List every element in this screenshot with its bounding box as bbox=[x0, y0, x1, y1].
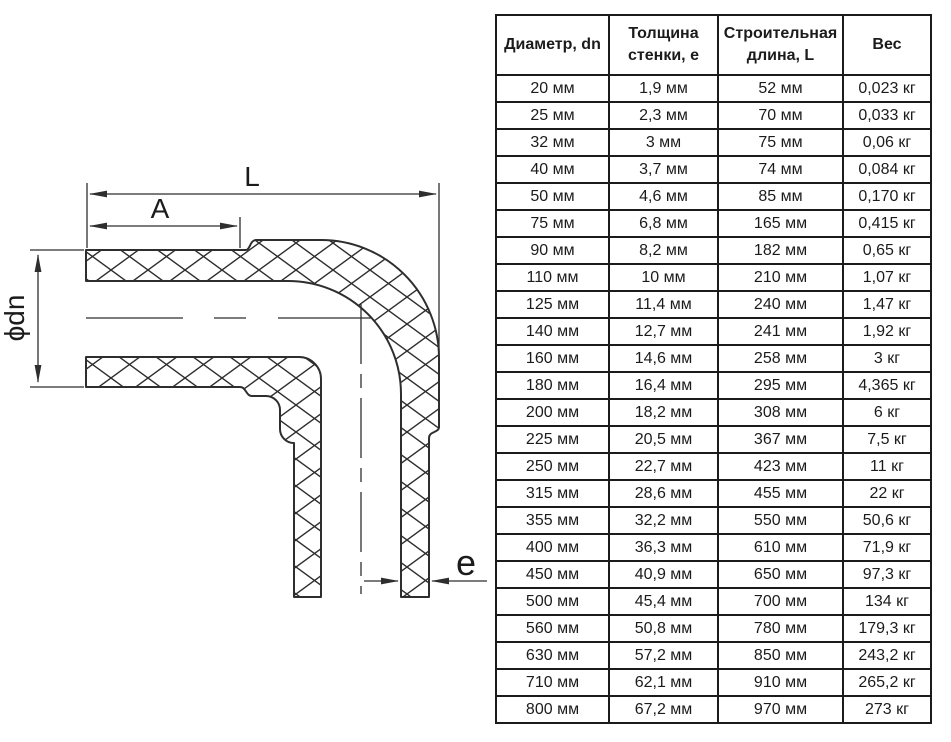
table-cell: 273 кг bbox=[843, 696, 931, 723]
table-row: 75 мм6,8 мм165 мм0,415 кг bbox=[496, 210, 931, 237]
table-body: 20 мм1,9 мм52 мм0,023 кг25 мм2,3 мм70 мм… bbox=[496, 75, 931, 723]
col-header-wall-thickness: Толщина стенки, е bbox=[609, 15, 718, 75]
table-cell: 7,5 кг bbox=[843, 426, 931, 453]
table-cell: 85 мм bbox=[718, 183, 843, 210]
table-cell: 0,084 кг bbox=[843, 156, 931, 183]
table-cell: 12,7 мм bbox=[609, 318, 718, 345]
table-cell: 3 кг bbox=[843, 345, 931, 372]
dimension-socket-depth: A bbox=[90, 193, 240, 248]
table-cell: 1,92 кг bbox=[843, 318, 931, 345]
table-row: 20 мм1,9 мм52 мм0,023 кг bbox=[496, 75, 931, 102]
label-diameter: ϕdn bbox=[0, 295, 30, 342]
table-cell: 71,9 кг bbox=[843, 534, 931, 561]
table-row: 225 мм20,5 мм367 мм7,5 кг bbox=[496, 426, 931, 453]
table-cell: 700 мм bbox=[718, 588, 843, 615]
table-cell: 16,4 мм bbox=[609, 372, 718, 399]
table-cell: 423 мм bbox=[718, 453, 843, 480]
table-cell: 1,9 мм bbox=[609, 75, 718, 102]
table-row: 315 мм28,6 мм455 мм22 кг bbox=[496, 480, 931, 507]
table-cell: 28,6 мм bbox=[609, 480, 718, 507]
dimension-diameter: ϕdn bbox=[0, 250, 84, 387]
table-cell: 182 мм bbox=[718, 237, 843, 264]
table-cell: 75 мм bbox=[718, 129, 843, 156]
label-overall-length: L bbox=[244, 161, 260, 192]
col-header-diameter: Диаметр, dn bbox=[496, 15, 609, 75]
table-cell: 560 мм bbox=[496, 615, 609, 642]
table-cell: 0,415 кг bbox=[843, 210, 931, 237]
col-header-construction-length: Строительная длина, L bbox=[718, 15, 843, 75]
table-row: 710 мм62,1 мм910 мм265,2 кг bbox=[496, 669, 931, 696]
table-cell: 18,2 мм bbox=[609, 399, 718, 426]
table-cell: 22,7 мм bbox=[609, 453, 718, 480]
table-cell: 1,07 кг bbox=[843, 264, 931, 291]
dimensions-table: Диаметр, dn Толщина стенки, е Строительн… bbox=[495, 14, 932, 724]
table-cell: 40,9 мм bbox=[609, 561, 718, 588]
table-cell: 4,365 кг bbox=[843, 372, 931, 399]
table-cell: 75 мм bbox=[496, 210, 609, 237]
table-row: 630 мм57,2 мм850 мм243,2 кг bbox=[496, 642, 931, 669]
table-cell: 910 мм bbox=[718, 669, 843, 696]
table-cell: 0,033 кг bbox=[843, 102, 931, 129]
table-cell: 20,5 мм bbox=[609, 426, 718, 453]
table-cell: 6,8 мм bbox=[609, 210, 718, 237]
table-cell: 250 мм bbox=[496, 453, 609, 480]
table-row: 250 мм22,7 мм423 мм11 кг bbox=[496, 453, 931, 480]
table-cell: 8,2 мм bbox=[609, 237, 718, 264]
table-cell: 0,06 кг bbox=[843, 129, 931, 156]
table-row: 500 мм45,4 мм700 мм134 кг bbox=[496, 588, 931, 615]
table-cell: 630 мм bbox=[496, 642, 609, 669]
table-row: 180 мм16,4 мм295 мм4,365 кг bbox=[496, 372, 931, 399]
table-cell: 400 мм bbox=[496, 534, 609, 561]
table-cell: 36,3 мм bbox=[609, 534, 718, 561]
table-cell: 14,6 мм bbox=[609, 345, 718, 372]
table-row: 25 мм2,3 мм70 мм0,033 кг bbox=[496, 102, 931, 129]
label-wall-thickness: e bbox=[456, 542, 476, 583]
table-cell: 200 мм bbox=[496, 399, 609, 426]
elbow-diagram: L A ϕdn e bbox=[0, 0, 495, 742]
table-cell: 67,2 мм bbox=[609, 696, 718, 723]
table-cell: 62,1 мм bbox=[609, 669, 718, 696]
table-row: 110 мм10 мм210 мм1,07 кг bbox=[496, 264, 931, 291]
table-cell: 11,4 мм bbox=[609, 291, 718, 318]
table-cell: 125 мм bbox=[496, 291, 609, 318]
table-cell: 32,2 мм bbox=[609, 507, 718, 534]
table-cell: 20 мм bbox=[496, 75, 609, 102]
table-cell: 160 мм bbox=[496, 345, 609, 372]
table-cell: 1,47 кг bbox=[843, 291, 931, 318]
table-row: 560 мм50,8 мм780 мм179,3 кг bbox=[496, 615, 931, 642]
table-cell: 4,6 мм bbox=[609, 183, 718, 210]
table-cell: 3,7 мм bbox=[609, 156, 718, 183]
table-cell: 225 мм bbox=[496, 426, 609, 453]
table-row: 90 мм8,2 мм182 мм0,65 кг bbox=[496, 237, 931, 264]
table-row: 200 мм18,2 мм308 мм6 кг bbox=[496, 399, 931, 426]
label-socket-depth: A bbox=[151, 193, 170, 224]
table-cell: 295 мм bbox=[718, 372, 843, 399]
table-row: 140 мм12,7 мм241 мм1,92 кг bbox=[496, 318, 931, 345]
table-cell: 710 мм bbox=[496, 669, 609, 696]
table-cell: 355 мм bbox=[496, 507, 609, 534]
table-row: 50 мм4,6 мм85 мм0,170 кг bbox=[496, 183, 931, 210]
table-cell: 650 мм bbox=[718, 561, 843, 588]
table-cell: 110 мм bbox=[496, 264, 609, 291]
table-cell: 10 мм bbox=[609, 264, 718, 291]
table-cell: 0,170 кг bbox=[843, 183, 931, 210]
table-cell: 140 мм bbox=[496, 318, 609, 345]
table-cell: 210 мм bbox=[718, 264, 843, 291]
table-cell: 70 мм bbox=[718, 102, 843, 129]
table-cell: 6 кг bbox=[843, 399, 931, 426]
table-row: 800 мм67,2 мм970 мм273 кг bbox=[496, 696, 931, 723]
table-cell: 500 мм bbox=[496, 588, 609, 615]
table-cell: 90 мм bbox=[496, 237, 609, 264]
table-cell: 0,023 кг bbox=[843, 75, 931, 102]
table-cell: 50,6 кг bbox=[843, 507, 931, 534]
table-cell: 45,4 мм bbox=[609, 588, 718, 615]
table-row: 450 мм40,9 мм650 мм97,3 кг bbox=[496, 561, 931, 588]
table-cell: 2,3 мм bbox=[609, 102, 718, 129]
product-spec-sheet: L A ϕdn e Диаметр, dn Тол bbox=[0, 0, 951, 742]
table-cell: 3 мм bbox=[609, 129, 718, 156]
table-cell: 97,3 кг bbox=[843, 561, 931, 588]
table-header-row: Диаметр, dn Толщина стенки, е Строительн… bbox=[496, 15, 931, 75]
table-cell: 50,8 мм bbox=[609, 615, 718, 642]
table-cell: 22 кг bbox=[843, 480, 931, 507]
table-cell: 970 мм bbox=[718, 696, 843, 723]
table-row: 355 мм32,2 мм550 мм50,6 кг bbox=[496, 507, 931, 534]
table-cell: 0,65 кг bbox=[843, 237, 931, 264]
table-cell: 180 мм bbox=[496, 372, 609, 399]
table-cell: 52 мм bbox=[718, 75, 843, 102]
table-row: 32 мм3 мм75 мм0,06 кг bbox=[496, 129, 931, 156]
table-row: 160 мм14,6 мм258 мм3 кг bbox=[496, 345, 931, 372]
table-cell: 74 мм bbox=[718, 156, 843, 183]
table-cell: 850 мм bbox=[718, 642, 843, 669]
table-cell: 455 мм bbox=[718, 480, 843, 507]
table-cell: 315 мм bbox=[496, 480, 609, 507]
table-cell: 243,2 кг bbox=[843, 642, 931, 669]
table-cell: 450 мм bbox=[496, 561, 609, 588]
table-cell: 265,2 кг bbox=[843, 669, 931, 696]
table-cell: 800 мм bbox=[496, 696, 609, 723]
table-cell: 240 мм bbox=[718, 291, 843, 318]
table-row: 400 мм36,3 мм610 мм71,9 кг bbox=[496, 534, 931, 561]
table-cell: 165 мм bbox=[718, 210, 843, 237]
table-row: 40 мм3,7 мм74 мм0,084 кг bbox=[496, 156, 931, 183]
table-cell: 610 мм bbox=[718, 534, 843, 561]
table-cell: 258 мм bbox=[718, 345, 843, 372]
table-cell: 550 мм bbox=[718, 507, 843, 534]
table-cell: 308 мм bbox=[718, 399, 843, 426]
table-cell: 11 кг bbox=[843, 453, 931, 480]
table-cell: 780 мм bbox=[718, 615, 843, 642]
table-cell: 134 кг bbox=[843, 588, 931, 615]
elbow-inner-wall-section bbox=[86, 357, 321, 597]
table-cell: 179,3 кг bbox=[843, 615, 931, 642]
table-cell: 25 мм bbox=[496, 102, 609, 129]
elbow-outer-wall-section bbox=[86, 240, 439, 597]
table-cell: 367 мм bbox=[718, 426, 843, 453]
table-cell: 32 мм bbox=[496, 129, 609, 156]
table-cell: 241 мм bbox=[718, 318, 843, 345]
table-cell: 40 мм bbox=[496, 156, 609, 183]
table-row: 125 мм11,4 мм240 мм1,47 кг bbox=[496, 291, 931, 318]
table-cell: 57,2 мм bbox=[609, 642, 718, 669]
col-header-weight: Вес bbox=[843, 15, 931, 75]
table-cell: 50 мм bbox=[496, 183, 609, 210]
